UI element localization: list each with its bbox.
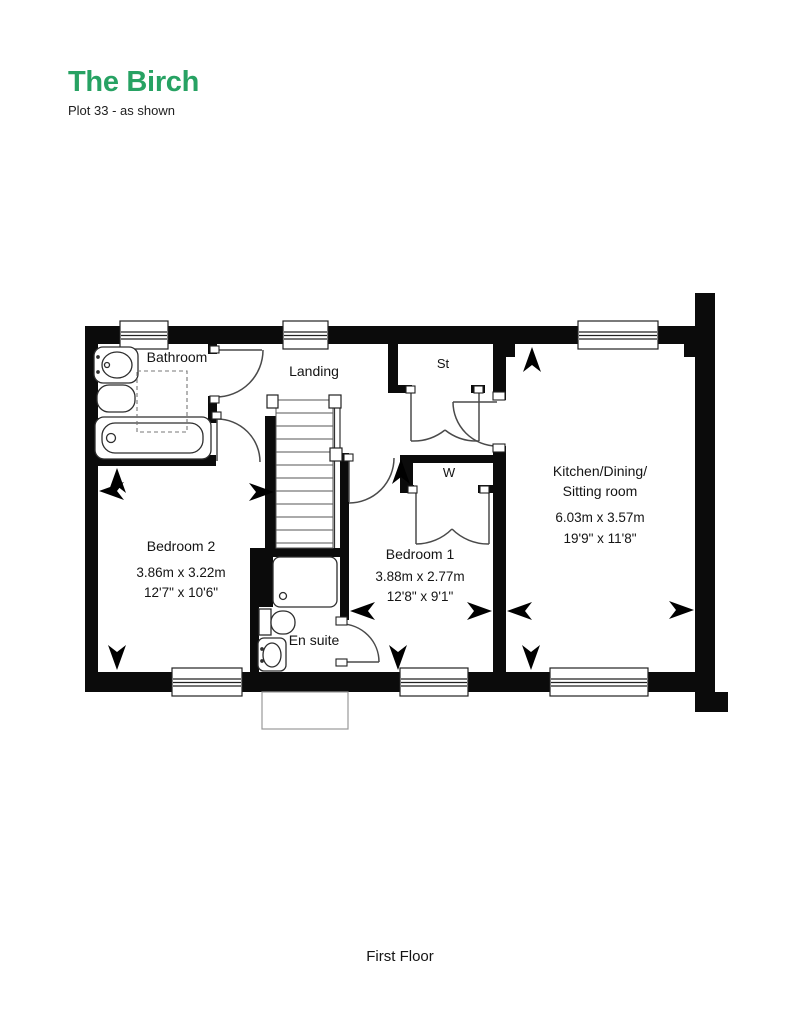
storage-double-doors — [411, 392, 479, 441]
bathroom-toilet — [97, 385, 135, 412]
window-bedroom2 — [172, 668, 242, 696]
kitchen-door — [453, 402, 497, 446]
bathroom-door — [216, 350, 263, 397]
ensuite-label: En suite — [289, 632, 340, 648]
bedroom1-door — [349, 458, 394, 503]
ensuite-door — [341, 624, 379, 662]
kitchen-imperial: 19'9" x 11'8" — [563, 531, 636, 546]
bathtub — [95, 417, 211, 459]
shower-tray — [273, 557, 337, 607]
bedroom1-label: Bedroom 1 — [386, 546, 454, 562]
arrow-kitchen-top — [523, 347, 541, 372]
bedroom2-imperial: 12'7" x 10'6" — [144, 585, 218, 600]
kitchen-label-line2: Sitting room — [563, 483, 638, 499]
bedroom2-label: Bedroom 2 — [147, 538, 215, 554]
bedroom1-imperial: 12'8" x 9'1" — [387, 589, 454, 604]
storage-label: St — [437, 356, 449, 371]
stair-rail — [335, 398, 341, 548]
floor-label: First Floor — [366, 948, 434, 965]
landing-label: Landing — [289, 363, 339, 379]
arrow-ensuite-wall — [350, 602, 375, 620]
wardrobe-double-doors — [416, 493, 489, 544]
arrow-kitchen-wall — [507, 602, 532, 620]
floorplan-drawing — [0, 0, 800, 1035]
bedroom2-metric: 3.86m x 3.22m — [136, 565, 225, 580]
window-bedroom1 — [400, 668, 468, 696]
arrow-bedroom1-down — [389, 645, 407, 670]
porch-canopy-outline — [262, 692, 348, 729]
window-kitchen-top — [578, 321, 658, 349]
arrow-right-wall — [669, 601, 694, 619]
arrow-bed1-wall-left — [467, 602, 492, 620]
dimension-arrows — [99, 347, 694, 670]
kitchen-metric: 6.03m x 3.57m — [555, 510, 644, 525]
arrow-kitchen-down — [522, 645, 540, 670]
arrow-bedroom2-down — [108, 645, 126, 670]
kitchen-label-line1: Kitchen/Dining/ — [553, 463, 647, 479]
floorplan-page: The Birch Plot 33 - as shown — [0, 0, 800, 1035]
window-landing — [283, 321, 328, 349]
bathroom-label: Bathroom — [147, 349, 208, 365]
bedroom1-metric: 3.88m x 2.77m — [375, 569, 464, 584]
wardrobe-label: W — [443, 465, 455, 480]
window-kitchen-bottom — [550, 668, 648, 696]
staircase — [267, 395, 342, 548]
ensuite-sink — [258, 638, 286, 671]
bathroom-sink — [94, 347, 138, 383]
window-bathroom — [120, 321, 168, 349]
bedroom2-door — [217, 419, 260, 462]
